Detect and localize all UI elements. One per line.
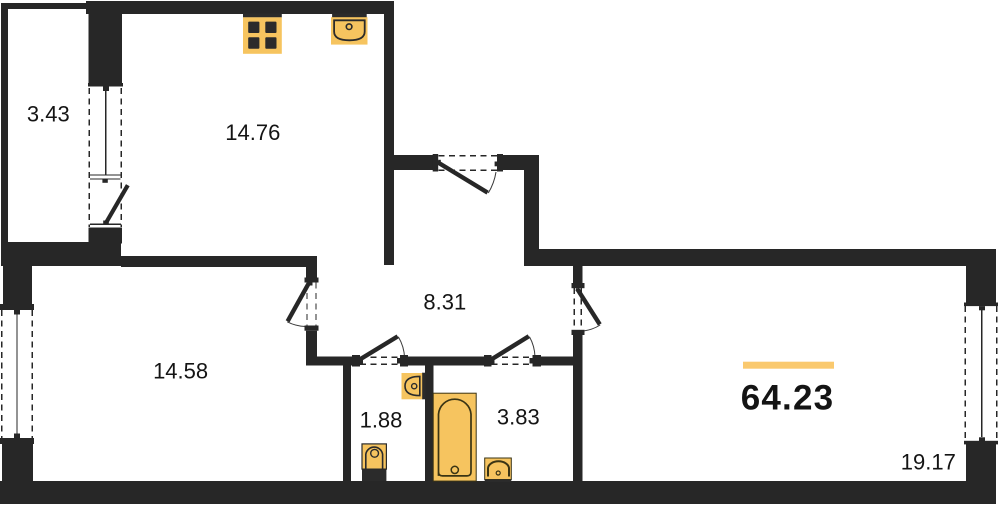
svg-text:64.23: 64.23 <box>741 379 835 418</box>
svg-text:14.76: 14.76 <box>225 120 280 145</box>
svg-text:19.17: 19.17 <box>901 449 956 474</box>
svg-text:3.83: 3.83 <box>497 405 540 430</box>
svg-text:8.31: 8.31 <box>423 289 466 314</box>
svg-text:14.58: 14.58 <box>153 358 208 383</box>
svg-text:3.43: 3.43 <box>27 101 70 126</box>
svg-text:1.88: 1.88 <box>360 407 403 432</box>
